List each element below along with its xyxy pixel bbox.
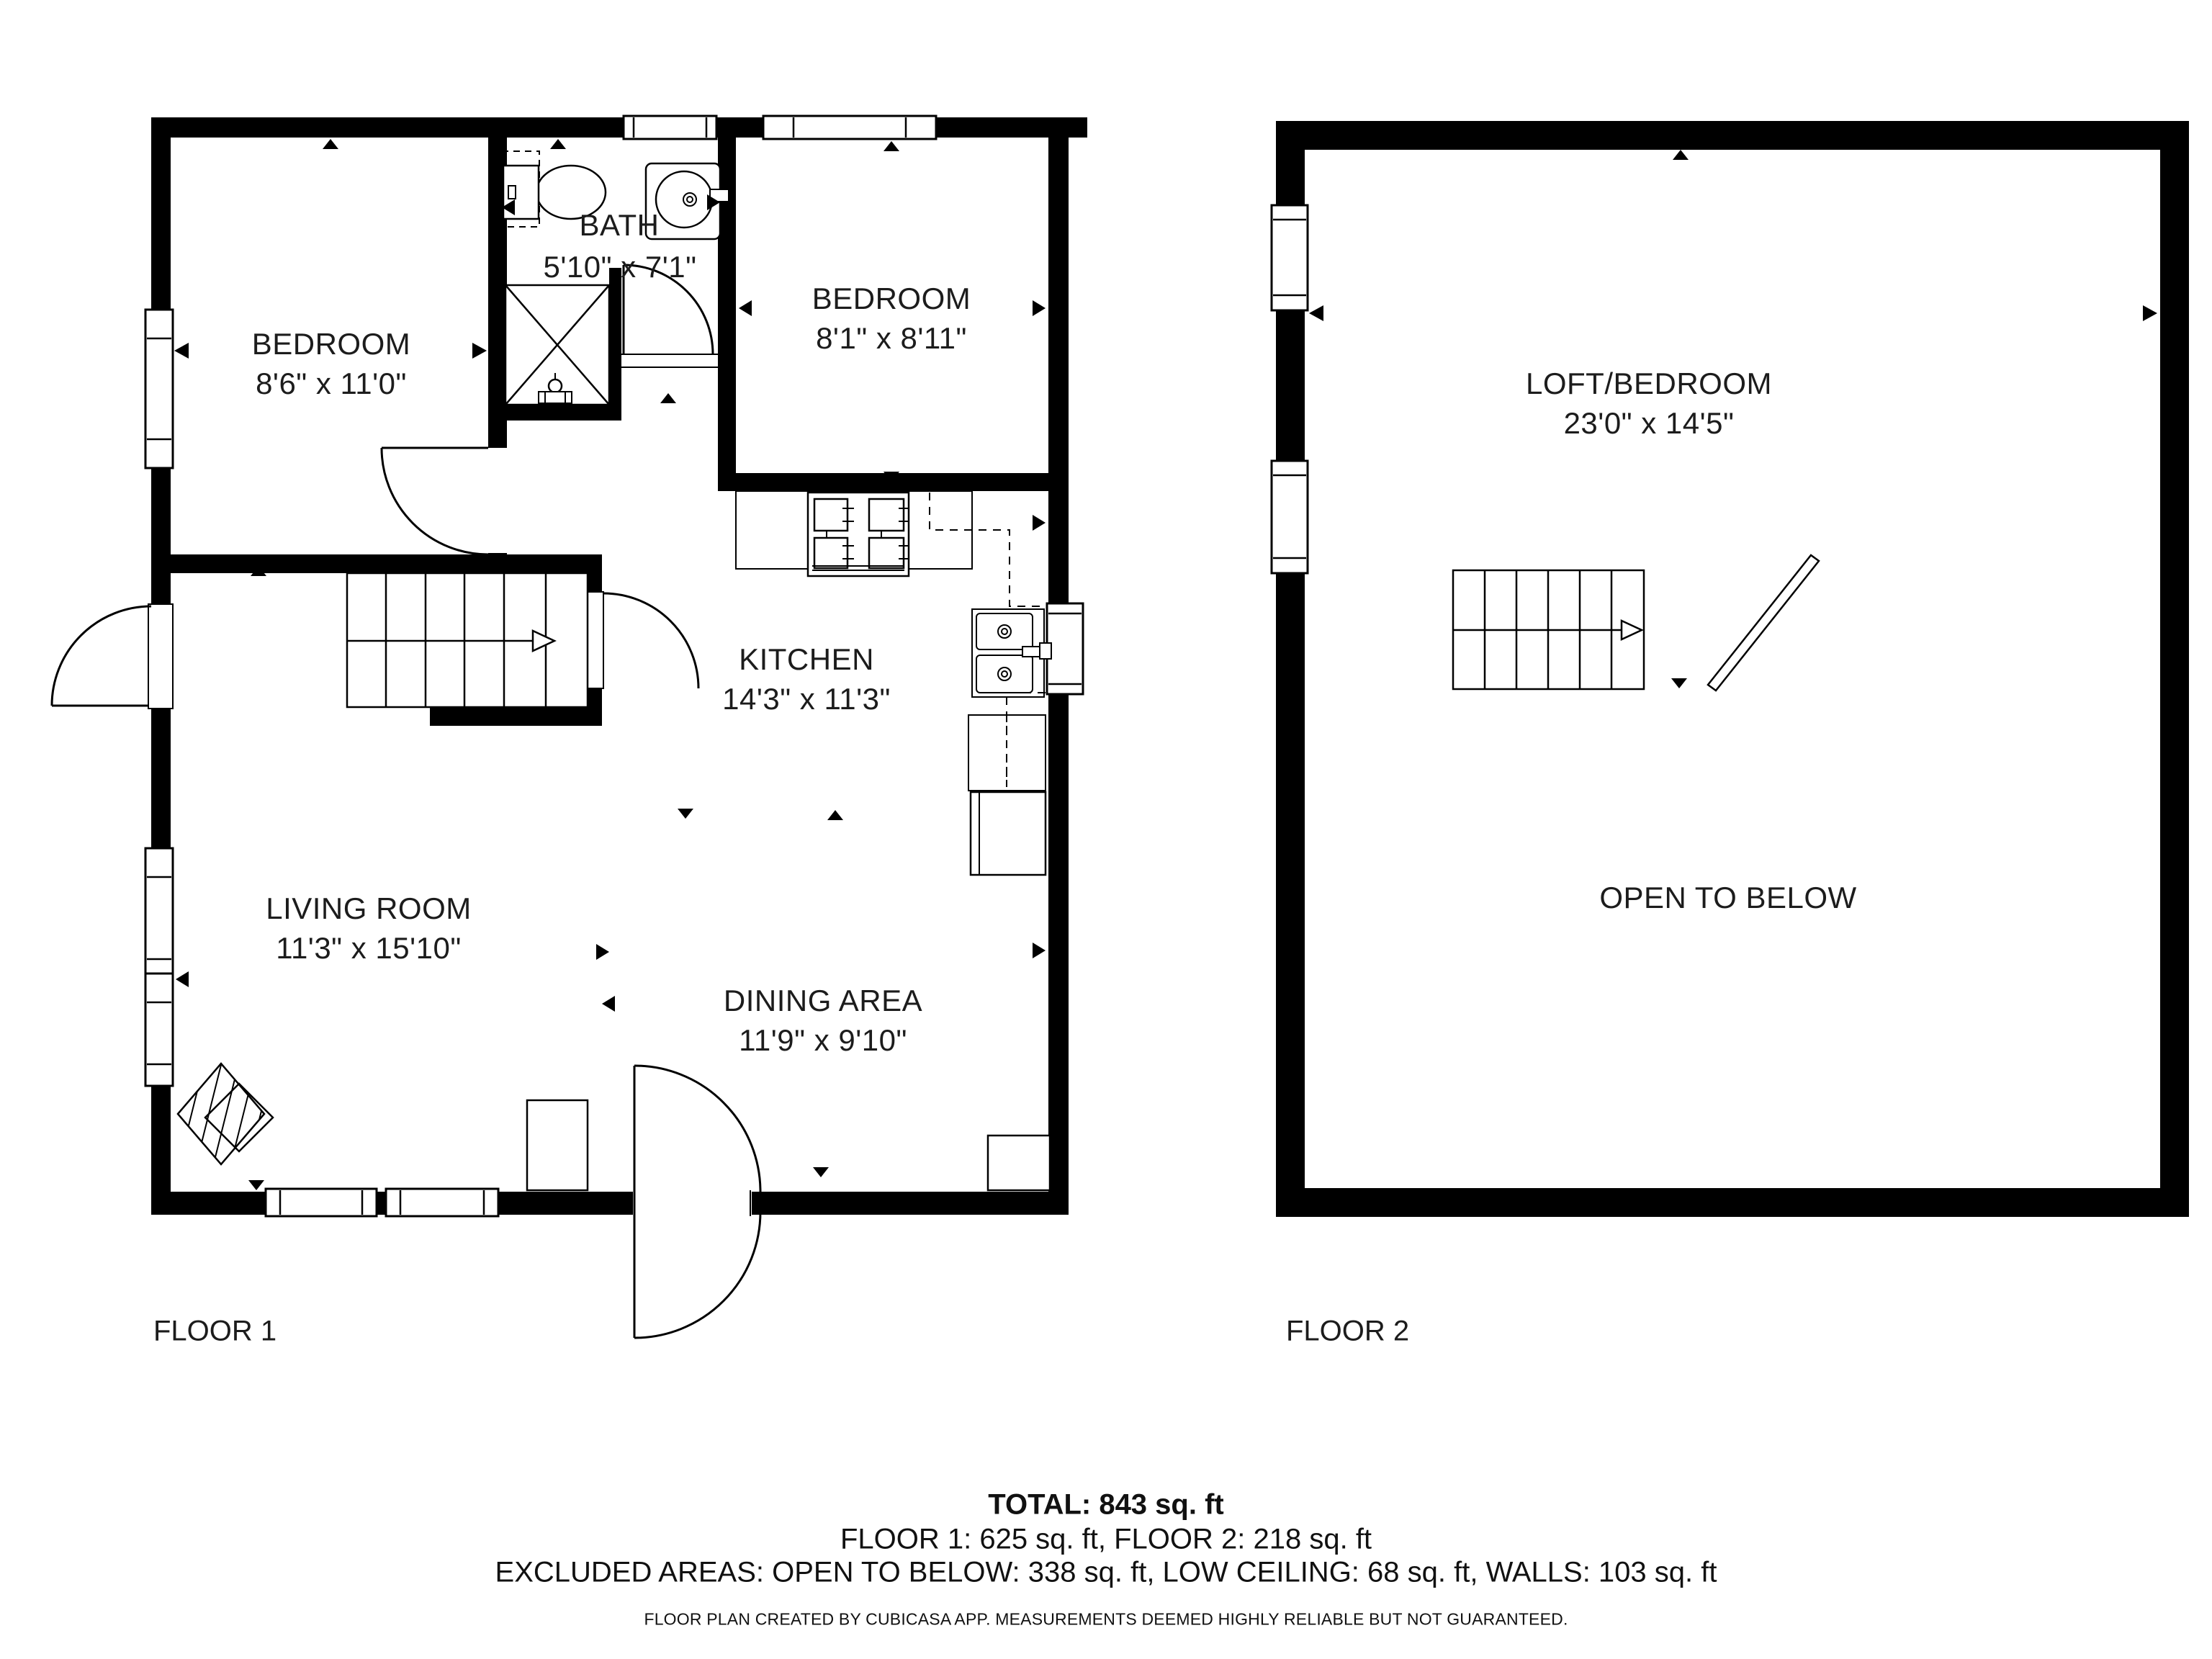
- loft-railing: [1708, 555, 1819, 691]
- fireplace: [160, 1056, 292, 1172]
- room-label-open-to-below: OPEN TO BELOW: [1599, 881, 1856, 915]
- summary-disclaimer: FLOOR PLAN CREATED BY CUBICASA APP. MEAS…: [644, 1610, 1568, 1629]
- kitchen-sink: [972, 609, 1051, 697]
- room-dims-bedroom1: 8'6" x 11'0": [256, 367, 407, 401]
- door-stairs: [603, 593, 698, 688]
- window-bedroom2-top: [763, 116, 936, 139]
- refrigerator: [971, 792, 1046, 875]
- floor-plan-drawing: [0, 0, 2212, 1659]
- window-living-left-upper: [145, 848, 173, 974]
- room-dims-loft: 23'0" x 14'5": [1564, 406, 1735, 441]
- stove: [808, 493, 909, 576]
- furniture-living: [527, 1100, 588, 1190]
- summary-total: TOTAL: 843 sq. ft: [988, 1489, 1223, 1521]
- floor-1-tag: FLOOR 1: [153, 1316, 276, 1348]
- room-label-bedroom1: BEDROOM: [252, 327, 411, 361]
- window-bedroom1-left: [145, 310, 173, 468]
- summary-excluded: EXCLUDED AREAS: OPEN TO BELOW: 338 sq. f…: [495, 1557, 1717, 1589]
- room-label-bath: BATH: [580, 208, 660, 243]
- room-label-kitchen: KITCHEN: [739, 642, 874, 677]
- window-living-bottom-2: [386, 1189, 498, 1216]
- floor-plan-page: BEDROOM 8'6" x 11'0" BATH 5'10" x 7'1" B…: [0, 0, 2212, 1659]
- door-exterior-left: [52, 606, 151, 706]
- room-dims-kitchen: 14'3" x 11'3": [722, 682, 891, 716]
- door-bedroom1: [382, 448, 488, 554]
- floor-2-plan: [1272, 121, 2189, 1217]
- room-label-living: LIVING ROOM: [266, 891, 472, 926]
- shower: [505, 285, 609, 405]
- window-living-left-lower: [145, 974, 173, 1086]
- room-label-loft: LOFT/BEDROOM: [1526, 367, 1772, 401]
- summary-floors: FLOOR 1: 625 sq. ft, FLOOR 2: 218 sq. ft: [840, 1524, 1372, 1556]
- window-loft-left-lower: [1272, 461, 1308, 573]
- window-living-bottom-1: [266, 1189, 377, 1216]
- stairs-floor-2: [1453, 570, 1644, 689]
- floor-1-furniture: [527, 1100, 1050, 1190]
- furniture-dining: [988, 1136, 1050, 1190]
- window-bath-top: [624, 116, 716, 139]
- floor-2-tag: FLOOR 2: [1286, 1316, 1409, 1348]
- window-kitchen-right: [1047, 603, 1083, 694]
- stairs-floor-1: [347, 573, 588, 707]
- room-dims-dining: 11'9" x 9'10": [739, 1023, 907, 1058]
- room-label-bedroom2: BEDROOM: [812, 282, 971, 316]
- room-label-dining: DINING AREA: [724, 984, 922, 1018]
- room-dims-bedroom2: 8'1" x 8'11": [816, 321, 967, 356]
- room-dims-bath: 5'10" x 7'1": [544, 250, 697, 284]
- room-dims-living: 11'3" x 15'10": [276, 931, 462, 966]
